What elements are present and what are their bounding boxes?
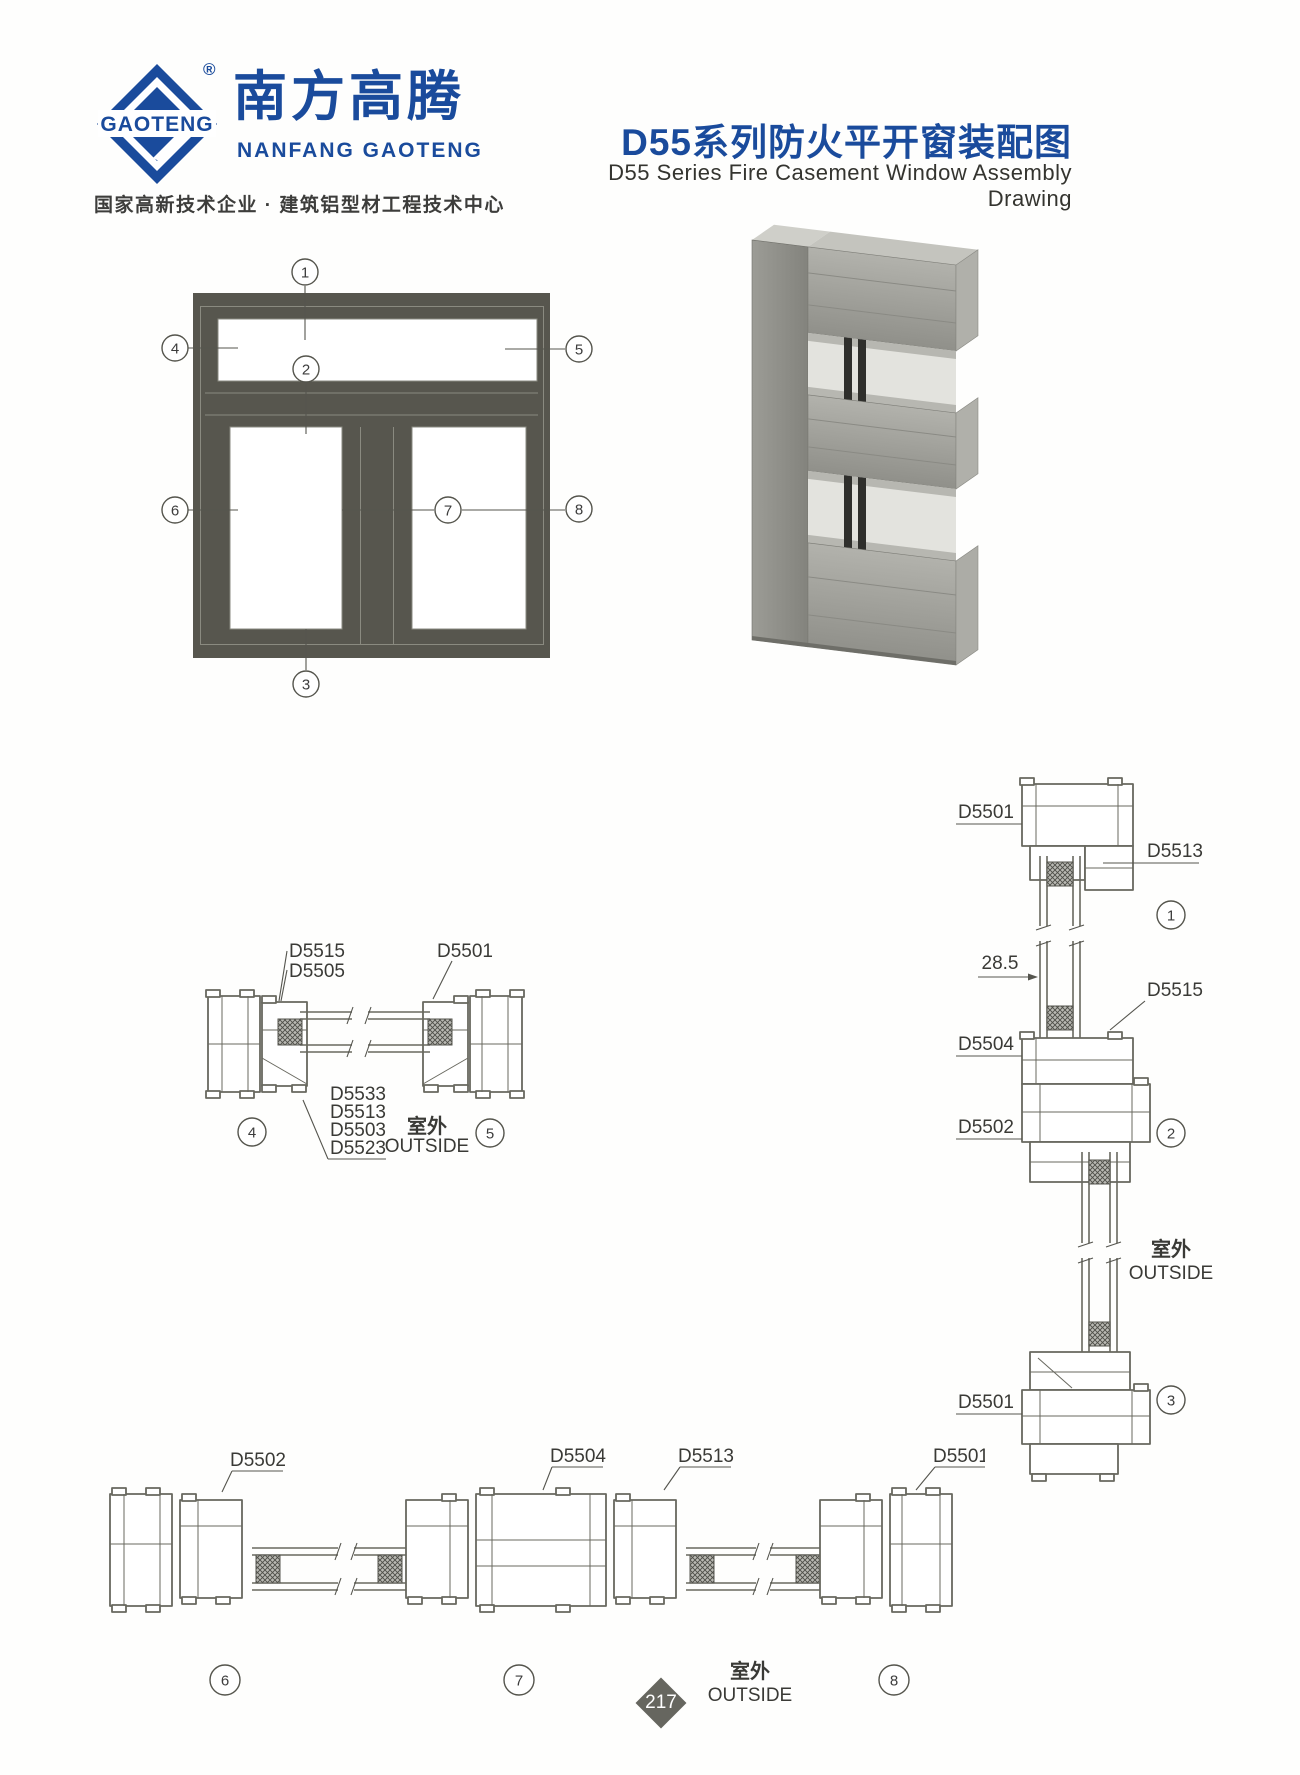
glazing-spacer	[428, 1019, 452, 1045]
glazing-spacer	[278, 1019, 302, 1045]
svg-text:5: 5	[486, 1126, 494, 1143]
outside-label-cn: 室外	[730, 1659, 770, 1683]
glazing-bar	[858, 477, 866, 550]
logo-band-text: GAOTENG	[100, 113, 213, 136]
callout-2-detail: 2	[1157, 1119, 1185, 1147]
callout-4: 4	[162, 335, 188, 361]
page-title: D55系列防火平开窗装配图	[560, 112, 1072, 166]
svg-text:8: 8	[575, 502, 583, 519]
company-tagline: 国家高新技术企业 · 建筑铝型材工程技术中心	[94, 190, 505, 217]
arm-mid-end	[956, 395, 978, 492]
page-number: 217	[635, 1677, 687, 1729]
callout-5: 5	[566, 336, 592, 362]
upper-glass-unit	[1036, 856, 1084, 1038]
glass-unit-left	[252, 1543, 410, 1595]
glazing-spacer	[256, 1555, 280, 1583]
assembly-drawing-page: GAOTENG ® 南方高腾 NANFANG GAOTENG 国家高新技术企业 …	[0, 0, 1300, 1775]
transom-glass	[218, 319, 537, 381]
callout-1-detail: 1	[1157, 901, 1185, 929]
outside-label-en: OUTSIDE	[708, 1685, 792, 1706]
svg-text:4: 4	[248, 1125, 256, 1142]
svg-text:8: 8	[890, 1673, 898, 1690]
svg-text:4: 4	[171, 341, 179, 358]
outside-label-en: OUTSIDE	[385, 1136, 469, 1157]
callout-2: 2	[293, 356, 319, 382]
brand-cn-name: 南方高腾	[233, 70, 465, 124]
right-casement-glass	[412, 427, 526, 629]
callout-7: 7	[435, 497, 461, 523]
part-label: D5504	[550, 1446, 606, 1467]
horizontal-section-detail: D5502 D5504 D5513 D5501 6 7 8 室外 OUTSIDE	[75, 1425, 985, 1725]
profile-spine	[752, 240, 808, 647]
outside-label-en: OUTSIDE	[1129, 1263, 1213, 1284]
svg-text:1: 1	[301, 265, 309, 282]
callout-8-detail: 8	[879, 1665, 909, 1695]
callout-1: 1	[292, 259, 318, 285]
part-label: D5515	[289, 941, 345, 962]
transom-profile	[1020, 1032, 1150, 1182]
part-label: D5501	[958, 802, 1014, 823]
glazing-bar	[858, 339, 866, 402]
callout-8: 8	[566, 496, 592, 522]
glazing-spacer	[1047, 1006, 1073, 1030]
part-label: D5502	[230, 1450, 286, 1471]
left-casement-glass	[230, 427, 342, 629]
glazing-spacer	[1047, 862, 1073, 886]
glass-unit-right	[686, 1543, 824, 1595]
head-frame-profile	[1020, 778, 1133, 890]
part-label: D5505	[289, 961, 345, 982]
sill-profile	[1022, 1352, 1150, 1481]
glazing-spacer	[378, 1555, 402, 1583]
logo-diamond: GAOTENG	[95, 62, 219, 186]
glazing-bar	[844, 337, 852, 400]
glazing-spacer	[690, 1555, 714, 1583]
brand-en-name: NANFANG GAOTENG	[237, 140, 483, 161]
svg-text:6: 6	[171, 503, 179, 520]
callout-4-detail: 4	[238, 1118, 266, 1146]
vertical-section-detail: D5501 D5513 1 28.5 D5515 D5504	[940, 690, 1240, 1500]
callout-3: 3	[293, 671, 319, 697]
svg-text:2: 2	[1167, 1126, 1175, 1143]
outside-label-cn: 室外	[407, 1114, 447, 1138]
callout-5-detail: 5	[476, 1119, 504, 1147]
arm-top-end	[956, 247, 978, 354]
svg-text:1: 1	[1167, 908, 1175, 925]
arm-bottom-end	[956, 543, 978, 668]
glazing-spacer	[796, 1555, 820, 1583]
svg-text:2: 2	[302, 362, 310, 379]
dimension-arrow	[1028, 974, 1038, 981]
glazing-spacer	[1089, 1322, 1110, 1346]
part-label: D5504	[958, 1034, 1014, 1055]
profile-3d-render	[735, 205, 1015, 765]
mullion-profile-group	[406, 1488, 676, 1612]
section-4-5-detail: D5515 D5505 D5501 D5533 D5513 D5503 D552…	[175, 930, 525, 1180]
part-label: D5513	[678, 1446, 734, 1467]
registered-mark: ®	[203, 60, 216, 80]
part-label: D5502	[958, 1117, 1014, 1138]
dimension-label: 28.5	[982, 953, 1019, 974]
outside-label-cn: 室外	[1151, 1237, 1191, 1261]
part-label: D5515	[1147, 980, 1203, 1001]
page-number-diamond: 217	[635, 1677, 687, 1729]
frame-sash-profile-left	[110, 1488, 242, 1612]
svg-text:5: 5	[575, 342, 583, 359]
callout-6-detail: 6	[210, 1665, 240, 1695]
part-label: D5501	[933, 1446, 985, 1467]
glazing-spacer	[1089, 1160, 1110, 1184]
profile-arm-top	[808, 247, 956, 351]
part-label: D5523	[330, 1138, 386, 1159]
svg-text:7: 7	[515, 1673, 523, 1690]
callout-7-detail: 7	[504, 1665, 534, 1695]
profile-3d-body	[752, 205, 978, 668]
svg-text:3: 3	[1167, 1393, 1175, 1410]
gaoteng-logo-icon: GAOTENG	[95, 62, 219, 186]
elevation-drawing: 1 2 3 4 5 6 7 8	[140, 245, 610, 715]
frame-sash-profile-right	[820, 1488, 952, 1612]
glazing-bar	[844, 475, 852, 548]
callout-3-detail: 3	[1157, 1386, 1185, 1414]
svg-text:3: 3	[302, 677, 310, 694]
part-label: D5501	[437, 941, 493, 962]
svg-text:6: 6	[221, 1673, 229, 1690]
svg-text:7: 7	[444, 503, 452, 520]
callout-6: 6	[162, 497, 188, 523]
part-label: D5501	[958, 1392, 1014, 1413]
part-label: D5513	[1147, 841, 1203, 862]
